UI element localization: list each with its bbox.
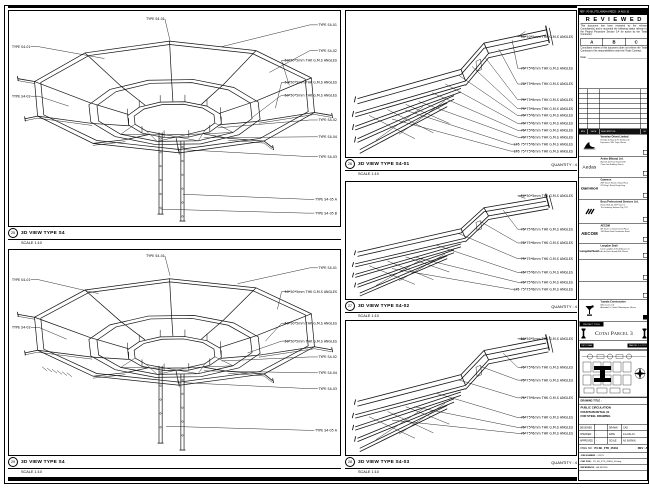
view-panel-3d-type-s4-03: 50*50*5mm THK G.M.S ANGLES75*75*6mm THK … [345, 320, 577, 456]
view-title-row: 25 3D VIEW TYPE S4 [8, 228, 341, 240]
status-b: B [603, 39, 625, 46]
leader-line [183, 194, 314, 199]
leader-line [166, 426, 314, 430]
leader-line [222, 25, 318, 47]
view-footer-mid-middle: 27 3D VIEW TYPE S4-02 QUANTITY : 4 SCALE… [345, 301, 577, 318]
view-scale: SCALE 1:10 [358, 172, 577, 176]
view-panel-3d-type-s4-bottom: TYPE S4-0150*50*5mm THK G.M.S ANGLES50*5… [8, 249, 341, 456]
status-checkbox [643, 150, 648, 155]
status-checkbox [643, 193, 648, 198]
member-callout: 75*75*6mm THK G.M.S ANGLES [521, 129, 573, 133]
member-callout: 75*75*6mm THK G.M.S ANGLES [521, 280, 573, 284]
project-name: Cotai Parcel 3 [595, 331, 633, 337]
reviewed-body-1: This document has been reviewed by the r… [581, 25, 648, 37]
yuanda-logo [579, 300, 600, 322]
member-callout: 50*50*5mm THK G.M.S ANGLES [521, 35, 573, 39]
member-callout: TYPE S4-02 [11, 325, 31, 329]
view-footer-left-top: 25 3D VIEW TYPE S4 SCALE 1:10 [8, 228, 341, 245]
key-plan-map [579, 350, 648, 398]
revision-table: REV DATE DESCRIPTION BY [579, 89, 648, 135]
member-callout: 50*50*5mm THK G.M.S ANGLES [285, 339, 337, 343]
leader-line [481, 367, 526, 381]
leader-line [165, 256, 170, 276]
status-checkbox [643, 275, 648, 280]
member-callout: 75*75*6mm THK G.M.S ANGLES [521, 366, 573, 370]
view-title: 3D VIEW TYPE S4 [21, 460, 65, 465]
member-callout: TYPE S4-01 [317, 23, 337, 27]
wireframe-drawing: 50*50*5mm THK G.M.S ANGLES75*75*6mm THK … [346, 182, 576, 299]
view-footer-mid-top: 26 3D VIEW TYPE S4-01 QUANTITY : 4 SCALE… [345, 159, 577, 176]
aecom-logo: AECOM [581, 231, 598, 236]
view-panel-3d-type-s4-01: 50*50*5mm THK G.M.S ANGLES75*75*6mm THK … [345, 10, 577, 158]
leader-line [238, 268, 318, 284]
reviewed-date-row: Date : [581, 55, 648, 59]
consultant-row-aecom: AECOM AECOM 8/F Tower 2, Grand Central P… [579, 224, 648, 244]
leader-line [459, 234, 526, 259]
detail-bubble: 27 [345, 301, 355, 311]
reviewed-stamp: R E V I E W E D This document has been r… [579, 15, 648, 89]
member-callout: TYPE S4-03 [317, 155, 337, 159]
member-callout: 50*50*5mm THK G.M.S ANGLES [285, 321, 337, 325]
dwg-no-row: DWG NO :P3-SK_FTD_45434 REV : A [579, 445, 648, 453]
reviewed-body-2: Consultant review of this document does … [581, 47, 648, 53]
drawing-title-text: PUBLIC CIRCULATION FOUNTAIN DETAIL 31 FO… [579, 405, 648, 425]
leader-line [512, 40, 526, 68]
leader-line [184, 383, 318, 389]
view-scale: SCALE 1:10 [358, 314, 577, 318]
member-callout: 75*75*6mm THK G.M.S ANGLES [521, 122, 573, 126]
status-checkbox [643, 217, 648, 222]
member-callout: TYPE S4-01 [145, 17, 165, 21]
detail-bubble: 25 [8, 228, 18, 238]
view-footer-left-bottom: 29 3D VIEW TYPE S4 SCALE 1:10 [8, 457, 341, 474]
member-callout: TYPE S4-02 [317, 49, 337, 53]
leader-line [437, 245, 526, 272]
member-callout: TYPE S4-05 B [314, 211, 338, 215]
wireframe-drawing: TYPE S4-0150*50*5mm THK G.M.S ANGLES50*5… [9, 250, 340, 455]
member-callout: 50*50*5mm THK G.M.S ANGLES [285, 290, 337, 294]
key-plan-header: KEY PLAN PARCEL 1, LOT 2 [579, 341, 648, 350]
status-abc-row: A B C [581, 38, 648, 46]
parcel-label: PARCEL 1, LOT 2 [627, 343, 648, 347]
member-callout: 50*50*5mm THK G.M.S ANGLES [521, 337, 573, 341]
view-title: 3D VIEW TYPE S4-03 [358, 460, 409, 465]
venetian-logo [579, 135, 600, 157]
leader-line [222, 357, 318, 361]
bottom-band [8, 477, 577, 481]
detail-number: 28 [348, 460, 352, 464]
view-scale: SCALE 1:10 [21, 470, 341, 474]
detail-bubble: 26 [345, 159, 355, 169]
consultant-row-gammon: Gammon Gammon 28/F Devon House, Taikoo P… [579, 178, 648, 200]
contractor-row-yuanda: Yuanda Construction (Macau) Co. Ltd. Ala… [579, 300, 648, 322]
view-title-row: 26 3D VIEW TYPE S4-01 QUANTITY : 4 [345, 159, 577, 171]
consultant-row-beca: Beca Professional Services Ltd. Room 230… [579, 200, 648, 224]
detail-number: 27 [348, 304, 352, 308]
member-callout: TYPE S4-01 [11, 278, 31, 282]
view-panel-3d-type-s4-02: 50*50*5mm THK G.M.S ANGLES75*75*6mm THK … [345, 181, 577, 300]
leader-line [392, 119, 519, 151]
member-callout: L75 75*75*6mm THK G.M.S ANGLES [514, 287, 573, 291]
consultant-row-blank-2 [579, 282, 648, 300]
member-callout: 75*75*6mm THK G.M.S ANGLES [521, 107, 573, 111]
status-checkbox [643, 237, 648, 242]
project-title-banner: Cotai Parcel 3 [579, 327, 648, 342]
consultant-row-langdon-seah: LangdonSeah Langdon Seah Davis Langdon &… [579, 244, 648, 260]
consultant-row-aedas: Aedas Aedas (Macau) Ltd. Avenida da Prai… [579, 157, 648, 178]
status-a: A [581, 39, 603, 46]
status-checkbox [643, 253, 648, 258]
member-callout: 50*50*5mm THK G.M.S ANGLES [285, 59, 337, 63]
title-block: REF : P3-SK_FTD_45434-A RECD : 14 AUG 10… [578, 8, 648, 481]
status-checkbox [643, 293, 648, 298]
member-callout: TYPE S4-03 [317, 387, 337, 391]
leader-line [165, 19, 170, 41]
pillar-icon [581, 329, 586, 339]
langdon-seah-logo: LangdonSeah [580, 250, 600, 253]
member-callout: L75 75*75*6mm THK G.M.S ANGLES [514, 142, 573, 146]
leader-line [472, 66, 526, 108]
wireframe-drawing: TYPE S4-01TYPE S4-0250*50*5mm THK G.M.S … [9, 11, 340, 226]
detail-number: 29 [11, 460, 15, 464]
member-callout: 50*50*5mm THK G.M.S ANGLES [285, 93, 337, 97]
member-callout: TYPE S4-01 [145, 254, 165, 258]
view-quantity: QUANTITY : 4 [551, 162, 577, 167]
member-callout: 75*75*6mm THK G.M.S ANGLES [521, 426, 573, 430]
view-title: 3D VIEW TYPE S4-01 [358, 162, 409, 167]
member-callout: 75*75*6mm THK G.M.S ANGLES [521, 396, 573, 400]
approvals-table: DESIGNEDDRAWNCAD CHECKED-DATE14-AUG-10 A… [579, 425, 648, 445]
member-callout: TYPE S4-01 [317, 266, 337, 270]
member-callout: 75*75*6mm THK G.M.S ANGLES [521, 241, 573, 245]
member-callout: TYPE S4-01 [11, 45, 31, 49]
view-title-row: 28 3D VIEW TYPE S4-03 QUANTITY : 4 [345, 457, 577, 469]
status-checkbox [643, 171, 648, 176]
status-c: C [625, 39, 647, 46]
leader-line [31, 47, 105, 59]
leader-line [392, 420, 526, 433]
status-checkbox-filled [643, 315, 648, 320]
view-quantity: QUANTITY : 4 [551, 460, 577, 465]
view-footer-mid-bottom: 28 3D VIEW TYPE S4-03 QUANTITY : 4 SCALE… [345, 457, 577, 474]
view-panel-3d-type-s4-top: TYPE S4-01TYPE S4-0250*50*5mm THK G.M.S … [8, 10, 341, 227]
member-callout: TYPE S4-05 A [314, 197, 338, 201]
member-callout: 50*50*5mm THK G.M.S ANGLES [285, 81, 337, 85]
wireframe-drawing: 50*50*5mm THK G.M.S ANGLES75*75*6mm THK … [346, 321, 576, 455]
member-callout: TYPE S4-02 [317, 118, 337, 122]
detail-number: 25 [11, 231, 15, 235]
member-callout: TYPE S4-02 [317, 355, 337, 359]
aedas-logo: Aedas [582, 164, 596, 169]
leader-line [31, 280, 99, 294]
member-callout: 75*75*6mm THK G.M.S ANGLES [521, 114, 573, 118]
view-title: 3D VIEW TYPE S4 [21, 231, 65, 236]
member-callout: 75*75*6mm THK G.M.S ANGLES [521, 378, 573, 382]
leader-line [485, 58, 525, 100]
drawing-sheet: TYPE S4-01TYPE S4-0250*50*5mm THK G.M.S … [0, 0, 650, 488]
date-label: Date : [581, 56, 588, 59]
rev-value: REV : A [638, 447, 648, 450]
member-callout: 75*75*6mm THK G.M.S ANGLES [521, 66, 573, 70]
view-quantity: QUANTITY : 4 [551, 304, 577, 309]
leader-line [218, 120, 318, 128]
gammon-logo: Gammon [581, 186, 598, 191]
member-callout: TYPE S4-04 [317, 135, 337, 139]
member-callout: TYPE S4-04 [317, 371, 337, 375]
consultant-row-blank-1 [579, 260, 648, 282]
member-callout: 75*75*6mm THK G.M.S ANGLES [521, 432, 573, 436]
detail-number: 26 [348, 162, 352, 166]
member-callout: 75*75*6mm THK G.M.S ANGLES [521, 257, 573, 261]
member-callout: 75*75*6mm THK G.M.S ANGLES [521, 227, 573, 231]
pillar-icon [642, 329, 647, 339]
beca-logo [579, 200, 600, 224]
wireframe-drawing: 50*50*5mm THK G.M.S ANGLES75*75*6mm THK … [346, 11, 576, 157]
consultant-row-venetian: Venetian Orient Limited Estrada da Baia … [579, 135, 648, 157]
leader-line [392, 269, 519, 290]
member-callout: TYPE S4-02 [11, 94, 31, 98]
view-title-row: 27 3D VIEW TYPE S4-02 QUANTITY : 4 [345, 301, 577, 313]
detail-bubble: 28 [345, 457, 355, 467]
leader-line [481, 222, 526, 243]
leader-line [459, 380, 526, 398]
leader-line [252, 95, 290, 118]
member-callout: TYPE S4-05 A [314, 428, 338, 432]
leader-line [184, 150, 318, 157]
view-scale: SCALE 1:10 [21, 241, 341, 245]
date-line [588, 55, 647, 59]
view-title: 3D VIEW TYPE S4-02 [358, 304, 409, 309]
view-title-row: 29 3D VIEW TYPE S4 [8, 457, 341, 469]
member-callout: 75*75*6mm THK G.M.S ANGLES [521, 135, 573, 139]
key-plan-label: KEY PLAN [580, 343, 594, 347]
member-callout: 75*75*6mm THK G.M.S ANGLES [521, 271, 573, 275]
member-callout: L75 75*75*6mm THK G.M.S ANGLES [514, 149, 573, 153]
view-scale: SCALE 1:10 [358, 470, 577, 474]
reviewed-title: R E V I E W E D [581, 16, 648, 24]
member-callout: 75*75*6mm THK G.M.S ANGLES [521, 82, 573, 86]
member-callout: 50*50*5mm THK G.M.S ANGLES [521, 194, 573, 198]
member-callout: 75*75*6mm THK G.M.S ANGLES [521, 416, 573, 420]
detail-bubble: 29 [8, 457, 18, 467]
top-rule [8, 6, 577, 8]
member-callout: 75*75*6mm THK G.M.S ANGLES [521, 98, 573, 102]
revision-header-row: REV DATE DESCRIPTION BY [579, 129, 648, 134]
